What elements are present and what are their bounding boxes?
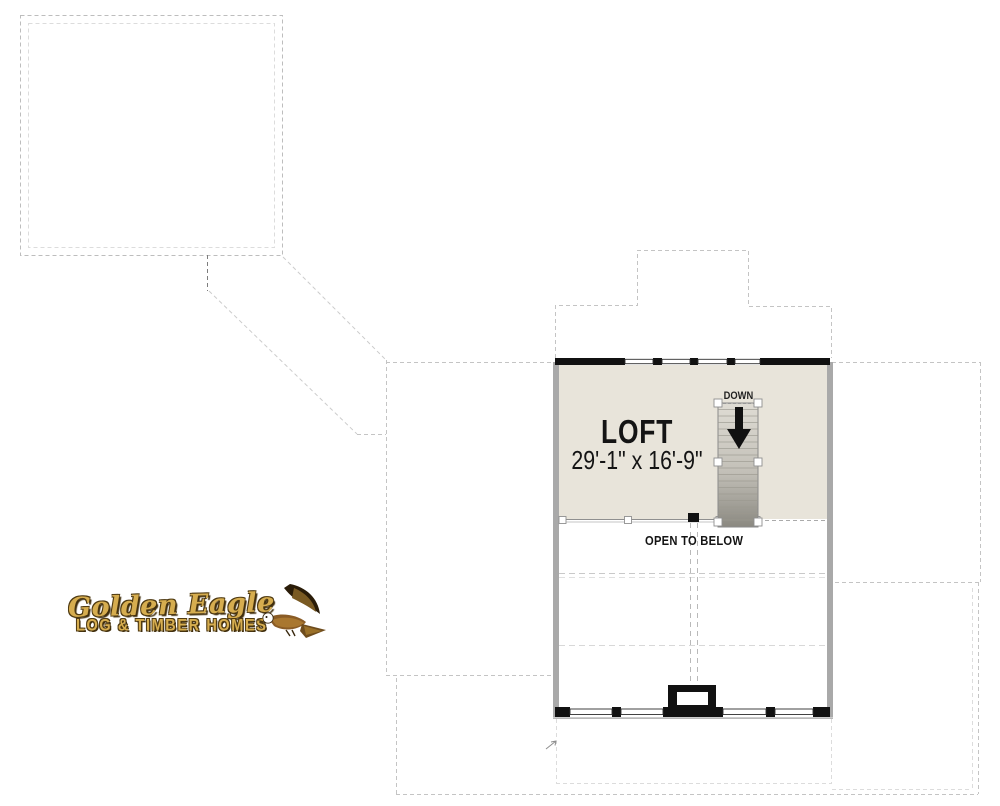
bottom-wall [553, 685, 833, 719]
stair-down-label: DOWN [707, 390, 769, 402]
room-dimensions: 29'-1" x 16'-9" [547, 445, 727, 476]
railing-post [688, 513, 699, 522]
floor-plan-page: LOFT 29'-1" x 16'-9" OPEN TO BELOW DOWN … [0, 0, 1000, 806]
top-wall [555, 358, 830, 365]
open-to-below-label: OPEN TO BELOW [614, 533, 774, 548]
roof-outline-dashed [21, 16, 981, 795]
company-logo: Golden Eagle LOG & TIMBER HOMES [60, 586, 330, 652]
logo-subtitle: LOG & TIMBER HOMES [76, 618, 268, 634]
floor-plan-drawing [0, 0, 1000, 806]
fireplace [668, 685, 716, 709]
grade-arrow-mark [546, 741, 556, 749]
eagle-icon [256, 584, 328, 652]
